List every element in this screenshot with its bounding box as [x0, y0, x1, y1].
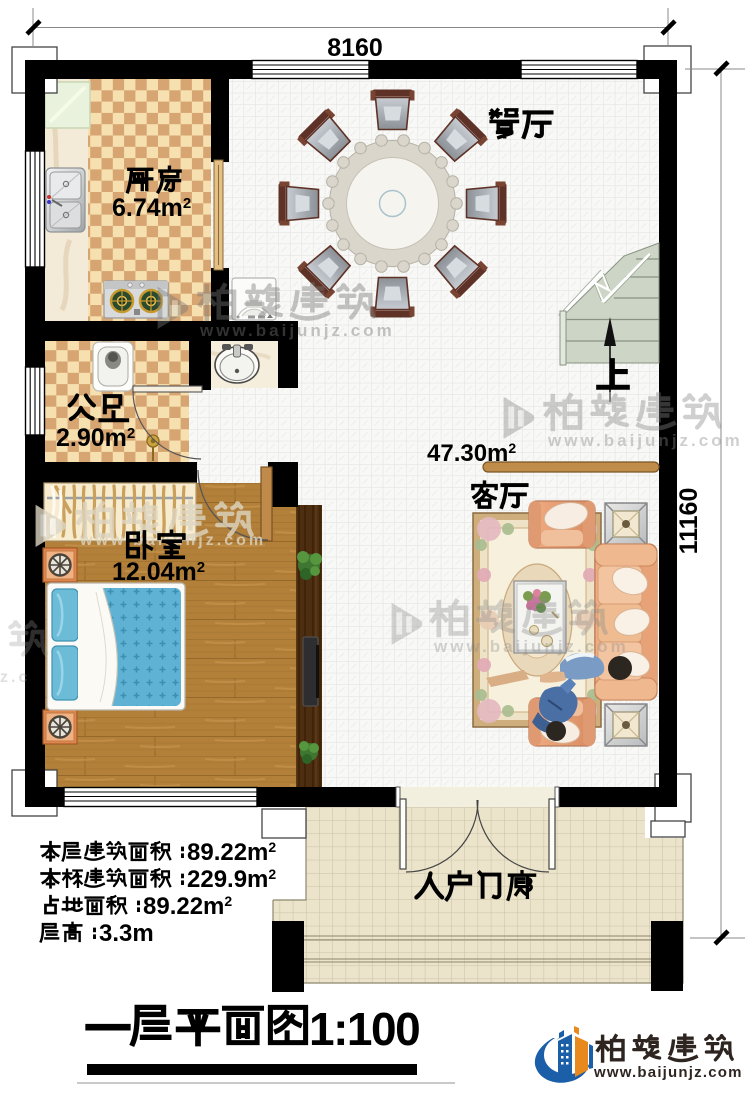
svg-text:47.30m2: 47.30m2	[427, 440, 516, 467]
svg-text:2.90m2: 2.90m2	[56, 424, 135, 452]
svg-text:z.c: z.c	[0, 669, 30, 686]
svg-text:www.baijunjz.com: www.baijunjz.com	[593, 1064, 743, 1081]
svg-text:11160: 11160	[675, 488, 703, 555]
svg-text:www.baijunjz.com: www.baijunjz.com	[199, 321, 395, 340]
svg-text:www.baijunjz.com: www.baijunjz.com	[547, 431, 743, 450]
svg-text:1:100: 1:100	[309, 1003, 419, 1055]
svg-text:www.baijunjz.com: www.baijunjz.com	[433, 637, 629, 656]
svg-text:12.04m2: 12.04m2	[112, 558, 205, 586]
svg-text:229.9m2: 229.9m2	[187, 866, 276, 893]
svg-text:89.22m2: 89.22m2	[143, 893, 232, 920]
svg-text:8160: 8160	[327, 34, 383, 62]
svg-text:3.3m: 3.3m	[99, 920, 154, 947]
svg-text:89.22m2: 89.22m2	[187, 839, 276, 866]
svg-text:6.74m2: 6.74m2	[112, 194, 191, 222]
